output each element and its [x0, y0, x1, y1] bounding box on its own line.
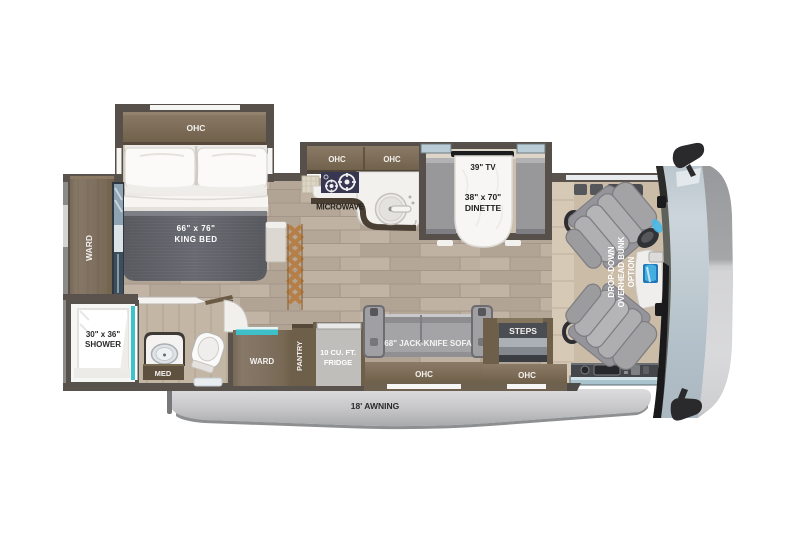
- svg-text:18' AWNING: 18' AWNING: [351, 401, 400, 411]
- svg-text:DROP-DOWN: DROP-DOWN: [607, 246, 616, 297]
- svg-text:WARD: WARD: [250, 357, 275, 366]
- svg-text:STEPS: STEPS: [509, 326, 537, 336]
- svg-text:MED: MED: [155, 369, 172, 378]
- svg-text:30" x 36": 30" x 36": [86, 330, 120, 339]
- svg-text:OVERHEAD BUNK: OVERHEAD BUNK: [617, 236, 626, 307]
- svg-text:MICROWAVE: MICROWAVE: [316, 203, 365, 212]
- svg-text:FRIDGE: FRIDGE: [324, 358, 352, 367]
- svg-text:OHC: OHC: [328, 155, 346, 164]
- svg-text:PANTRY: PANTRY: [295, 341, 304, 371]
- svg-text:KING BED: KING BED: [174, 235, 217, 244]
- svg-text:68" JACK-KNIFE SOFA: 68" JACK-KNIFE SOFA: [384, 339, 472, 348]
- svg-text:OHC: OHC: [383, 155, 401, 164]
- svg-text:66" x 76": 66" x 76": [177, 224, 216, 233]
- svg-text:SHOWER: SHOWER: [85, 340, 121, 349]
- svg-text:OHC: OHC: [187, 123, 206, 133]
- svg-text:38" x 70": 38" x 70": [465, 192, 501, 202]
- svg-text:39" TV: 39" TV: [470, 163, 496, 172]
- svg-text:DINETTE: DINETTE: [465, 203, 502, 213]
- svg-text:10 CU. FT.: 10 CU. FT.: [320, 348, 356, 357]
- svg-text:OHC: OHC: [518, 371, 536, 380]
- svg-text:OPTION: OPTION: [627, 256, 636, 287]
- svg-text:OHC: OHC: [415, 370, 433, 379]
- svg-text:WARD: WARD: [84, 235, 94, 261]
